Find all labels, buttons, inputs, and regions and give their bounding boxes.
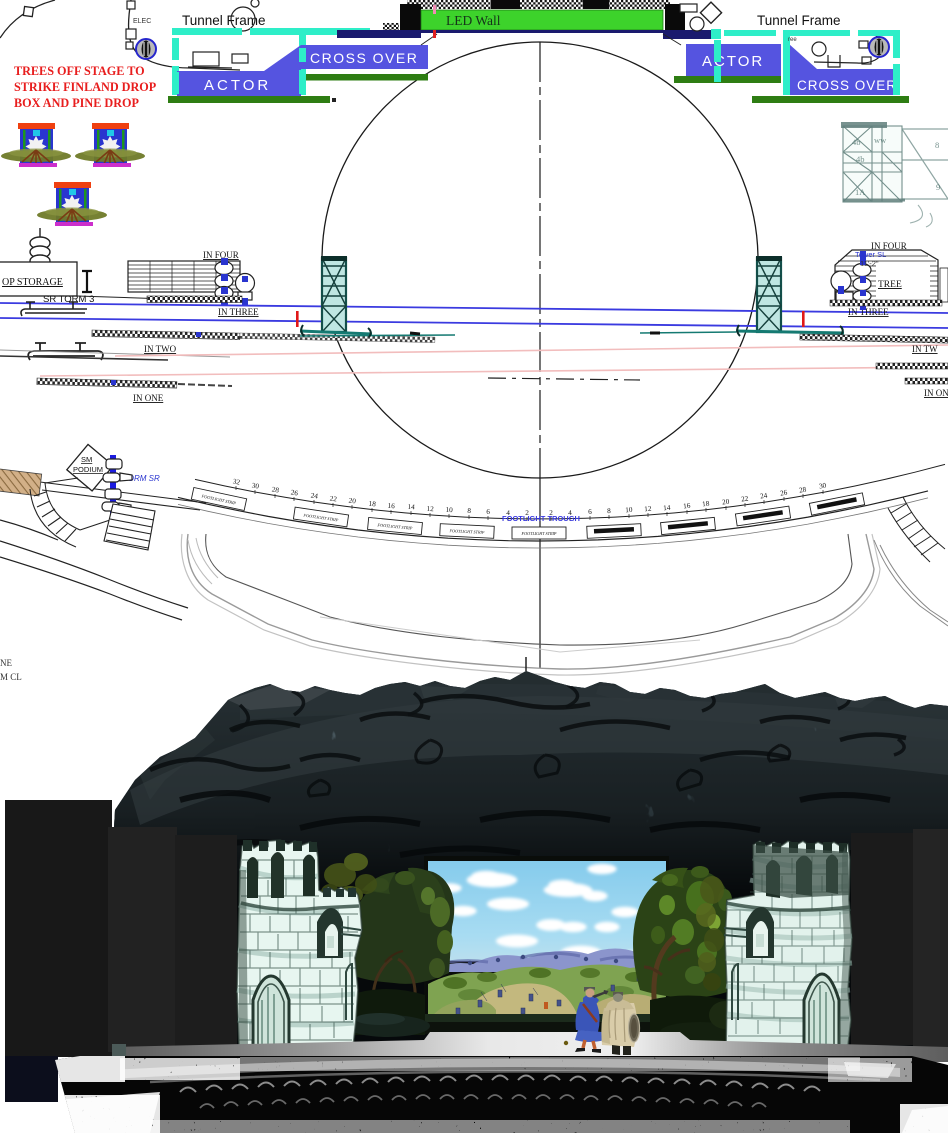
svg-text:16: 16 — [683, 502, 691, 511]
svg-text:CROSS OVER: CROSS OVER — [797, 78, 897, 93]
svg-text:STRIKE FINLAND DROP: STRIKE FINLAND DROP — [14, 80, 157, 94]
svg-text:TREES OFF STAGE TO: TREES OFF STAGE TO — [14, 64, 145, 78]
svg-text:Tower SL: Tower SL — [855, 250, 886, 259]
svg-text:PODIUM: PODIUM — [73, 465, 103, 474]
svg-text:IN THREE: IN THREE — [218, 307, 259, 317]
svg-text:OP STORAGE: OP STORAGE — [2, 277, 63, 288]
svg-text:12: 12 — [426, 505, 434, 514]
svg-text:IN THREE: IN THREE — [848, 307, 889, 317]
svg-text:6: 6 — [588, 508, 592, 516]
svg-text:8: 8 — [935, 140, 939, 150]
svg-text:ww: ww — [874, 135, 887, 145]
svg-text:1A: 1A — [855, 187, 866, 197]
svg-text:NE: NE — [0, 658, 12, 668]
svg-text:18: 18 — [368, 500, 376, 509]
svg-text:Tunnel Frame: Tunnel Frame — [757, 13, 841, 28]
svg-text:20: 20 — [722, 498, 731, 507]
svg-text:11'-2": 11'-2" — [860, 259, 879, 268]
svg-text:20: 20 — [348, 497, 357, 506]
svg-text:ELEC: ELEC — [133, 18, 151, 25]
svg-text:M CL: M CL — [0, 672, 22, 682]
svg-text:SM: SM — [81, 455, 92, 464]
svg-text:12: 12 — [644, 505, 652, 514]
svg-text:IN ONE: IN ONE — [133, 393, 164, 403]
svg-text:4b: 4b — [856, 154, 865, 164]
svg-text:FOOTLIGHT TROUGH: FOOTLIGHT TROUGH — [502, 514, 580, 523]
svg-text:14: 14 — [663, 504, 671, 513]
svg-text:ree: ree — [788, 37, 797, 43]
svg-text:16: 16 — [387, 502, 395, 511]
svg-text:IN FOUR: IN FOUR — [203, 250, 239, 260]
svg-text:IN TW: IN TW — [912, 344, 938, 354]
svg-text:10: 10 — [625, 506, 633, 514]
svg-text:IN TWO: IN TWO — [144, 344, 177, 354]
svg-text:ACTOR: ACTOR — [204, 77, 271, 94]
svg-text:LED Wall: LED Wall — [446, 13, 501, 28]
svg-text:18: 18 — [702, 500, 710, 509]
svg-text:CROSS OVER: CROSS OVER — [310, 50, 418, 66]
svg-text:10: 10 — [445, 506, 453, 514]
svg-text:BOX AND PINE DROP: BOX AND PINE DROP — [14, 96, 139, 110]
svg-text:IN ON: IN ON — [924, 388, 948, 398]
svg-text:14: 14 — [407, 503, 415, 512]
svg-text:4b: 4b — [852, 137, 861, 147]
svg-text:9: 9 — [936, 182, 940, 192]
svg-text:ACTOR: ACTOR — [702, 53, 764, 70]
svg-text:TREE: TREE — [878, 280, 902, 290]
svg-text:FOOTLIGHT STRIP: FOOTLIGHT STRIP — [521, 531, 557, 536]
